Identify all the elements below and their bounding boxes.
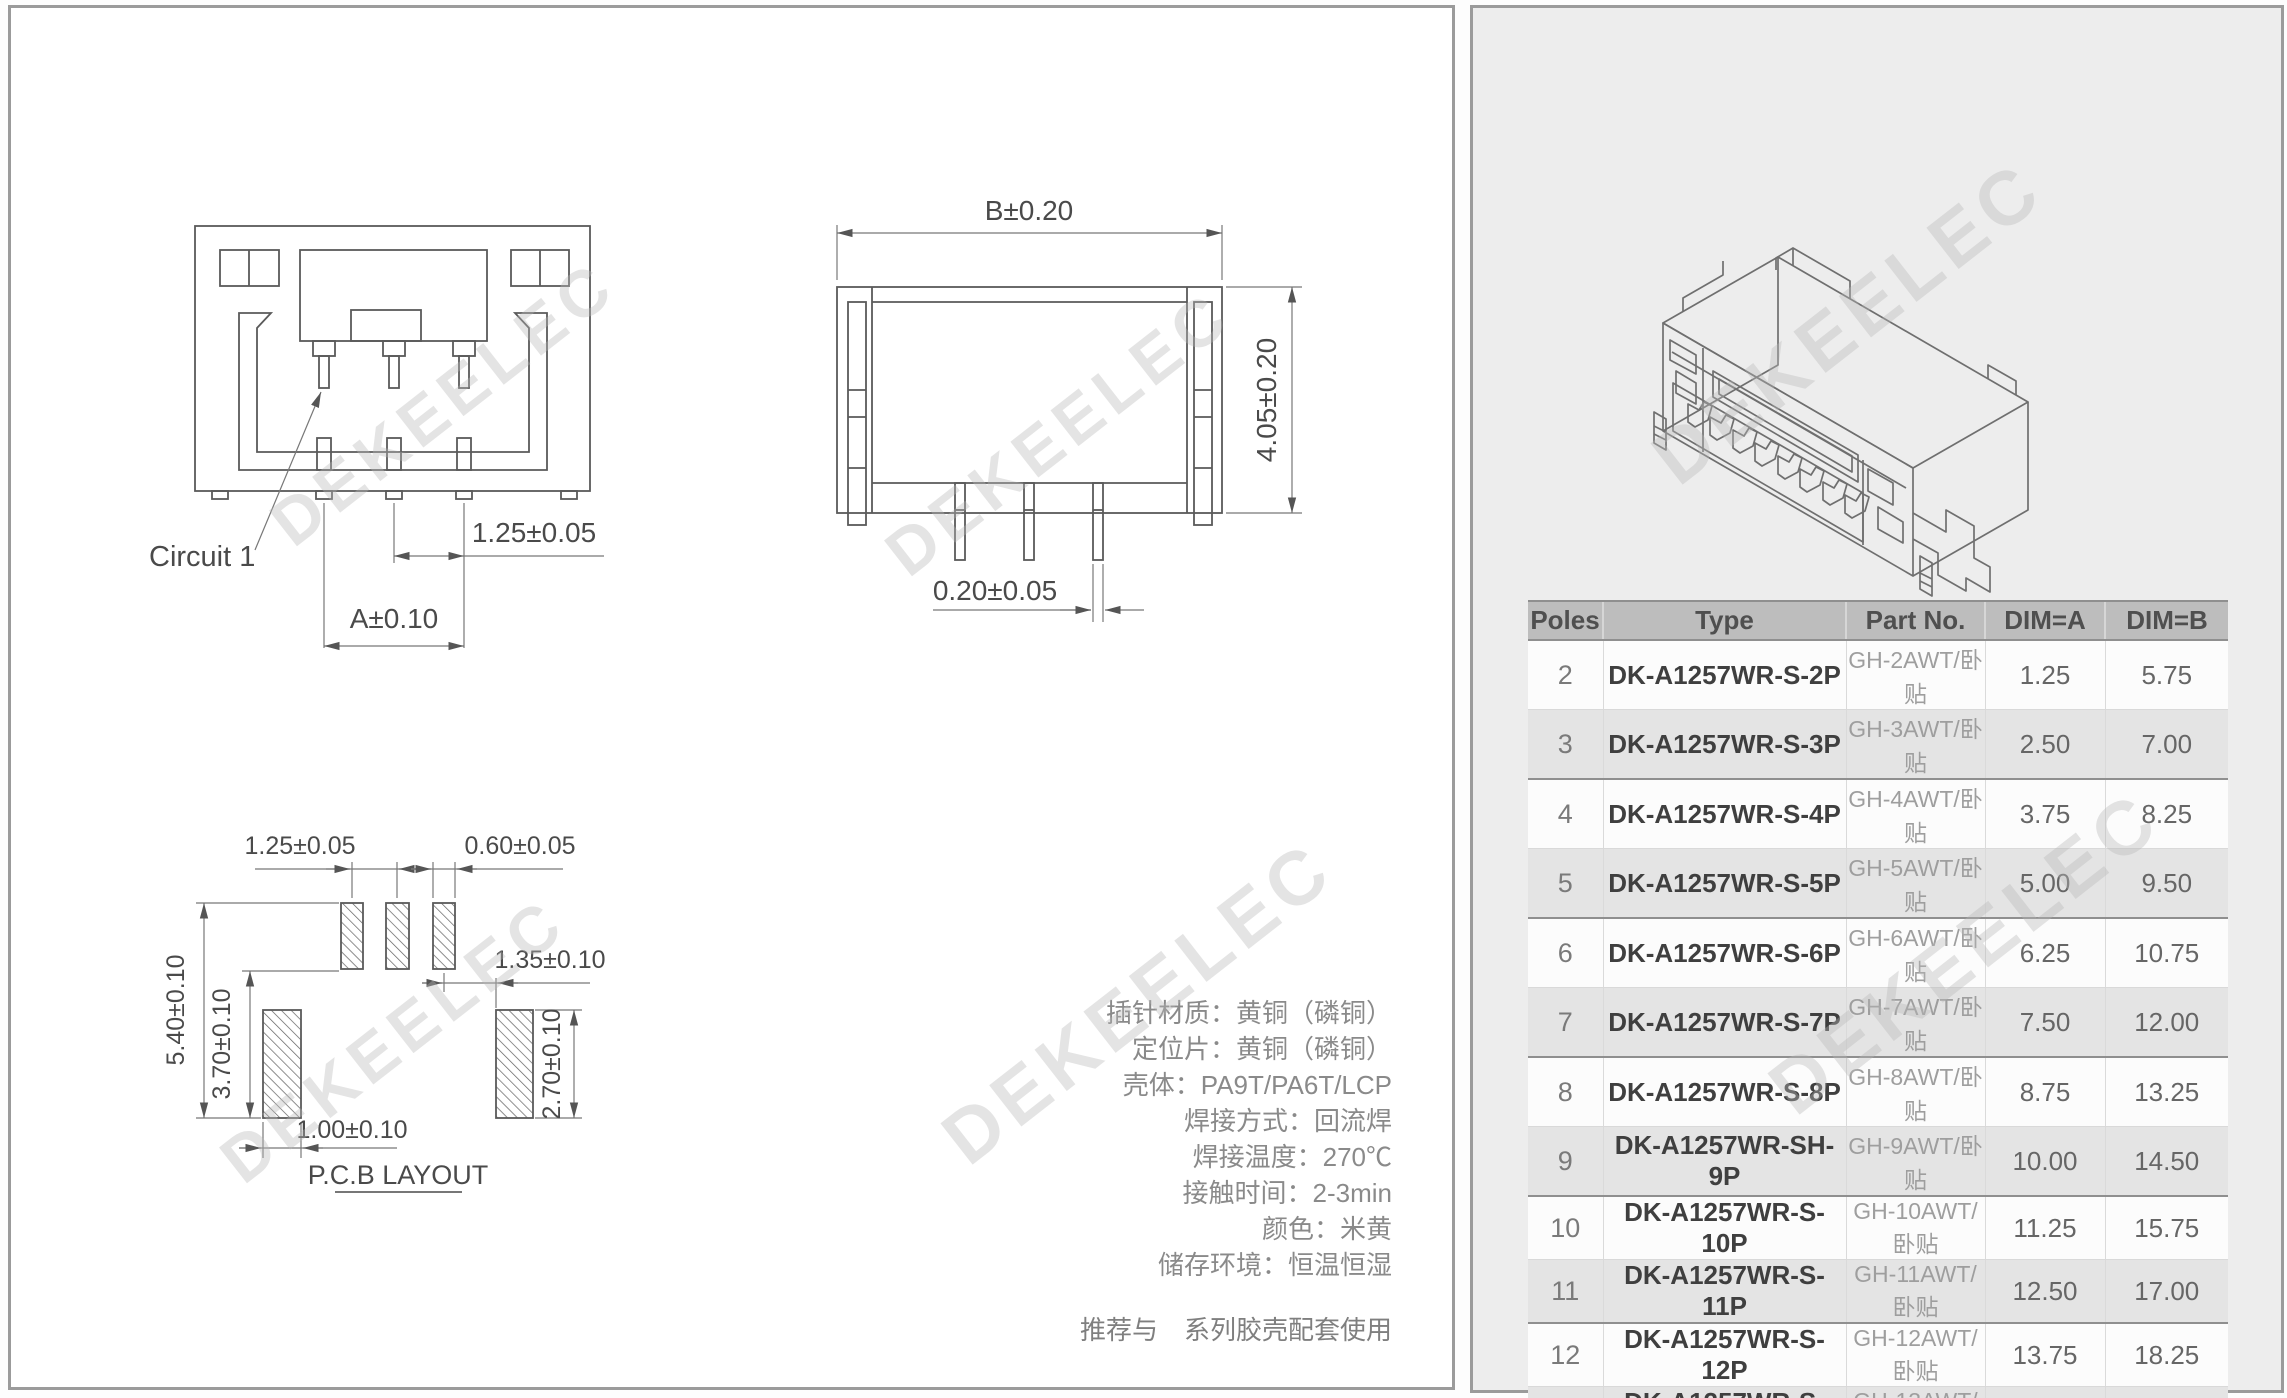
spec-line: 插针材质：黄铜（磷铜）: [1106, 995, 1392, 1031]
dim-label-gap: 1.35±0.10: [494, 946, 605, 974]
cell-part-no: GH-2AWT/卧贴: [1846, 640, 1985, 710]
cell-part-no: GH-6AWT/卧贴: [1846, 918, 1985, 988]
dim-label-left-width: 1.00±0.10: [296, 1116, 407, 1144]
cell-type: DK-A1257WR-S-6P: [1603, 918, 1846, 988]
cell-poles: 10: [1528, 1196, 1603, 1260]
cell-dim-a: 12.50: [1985, 1260, 2105, 1324]
cell-type: DK-A1257WR-S-7P: [1603, 988, 1846, 1058]
table-row: 13DK-A1257WR-S-13PGH-13AWT/卧贴15.0019.50: [1528, 1387, 2228, 1398]
part-table: PolesTypePart No.DIM=ADIM=B 2DK-A1257WR-…: [1528, 600, 2228, 1398]
pcb-layout-drawing: 1.25±0.05 0.60±0.05 1.35±0.10 5.40±0.10 …: [130, 820, 690, 1240]
cell-type: DK-A1257WR-SH-9P: [1603, 1127, 1846, 1197]
table-row: 8DK-A1257WR-S-8PGH-8AWT/卧贴8.7513.25: [1528, 1057, 2228, 1127]
spec-line: 焊接方式：回流焊: [1106, 1103, 1392, 1139]
table-row: 9DK-A1257WR-SH-9PGH-9AWT/卧贴10.0014.50: [1528, 1127, 2228, 1197]
dim-label-height: 4.05±0.20: [1251, 338, 1282, 462]
dim-label-pitch: 1.25±0.05: [472, 517, 596, 548]
cell-type: DK-A1257WR-S-10P: [1603, 1196, 1846, 1260]
cell-part-no: GH-9AWT/卧贴: [1846, 1127, 1985, 1197]
spec-line: 储存环境：恒温恒湿: [1106, 1247, 1392, 1283]
cell-dim-a: 1.25: [1985, 640, 2105, 710]
cell-poles: 6: [1528, 918, 1603, 988]
cell-part-no: GH-10AWT/卧贴: [1846, 1196, 1985, 1260]
cell-poles: 11: [1528, 1260, 1603, 1324]
cell-dim-a: 11.25: [1985, 1196, 2105, 1260]
contact-row: [1688, 402, 1869, 518]
cell-dim-b: 5.75: [2105, 640, 2228, 710]
cell-poles: 8: [1528, 1057, 1603, 1127]
cell-dim-a: 10.00: [1985, 1127, 2105, 1197]
cell-dim-a: 13.75: [1985, 1323, 2105, 1387]
cell-dim-b: 15.75: [2105, 1196, 2228, 1260]
table-row: 4DK-A1257WR-S-4PGH-4AWT/卧贴3.758.25: [1528, 779, 2228, 849]
product-panel: DEKEELEC DEKEELEC: [1470, 5, 2284, 1393]
table-row: 11DK-A1257WR-S-11PGH-11AWT/卧贴12.5017.00: [1528, 1260, 2228, 1324]
cell-part-no: GH-12AWT/卧贴: [1846, 1323, 1985, 1387]
cell-part-no: GH-11AWT/卧贴: [1846, 1260, 1985, 1324]
cell-part-no: GH-4AWT/卧贴: [1846, 779, 1985, 849]
column-header-dim-b: DIM=B: [2105, 601, 2228, 640]
dim-label-pin: 0.20±0.05: [933, 575, 1057, 606]
table-header-row: PolesTypePart No.DIM=ADIM=B: [1528, 601, 2228, 640]
cell-dim-b: 19.50: [2105, 1387, 2228, 1398]
table-row: 7DK-A1257WR-S-7PGH-7AWT/卧贴7.5012.00: [1528, 988, 2228, 1058]
table-row: 3DK-A1257WR-S-3PGH-3AWT/卧贴2.507.00: [1528, 710, 2228, 780]
cell-poles: 2: [1528, 640, 1603, 710]
cell-dim-a: 15.00: [1985, 1387, 2105, 1398]
solder-pads: [263, 903, 533, 1118]
column-header-part-no-: Part No.: [1846, 601, 1985, 640]
drawing-panel: DEKEELEC DEKEELEC DEKEELEC DEKEELEC: [8, 5, 1455, 1390]
cell-dim-b: 12.00: [2105, 988, 2228, 1058]
cell-poles: 4: [1528, 779, 1603, 849]
pin-contacts: [313, 341, 475, 388]
cell-dim-b: 14.50: [2105, 1127, 2228, 1197]
dim-label-total-height: 5.40±0.10: [162, 954, 190, 1065]
cell-type: DK-A1257WR-S-12P: [1603, 1323, 1846, 1387]
spec-line: 颜色：米黄: [1106, 1211, 1392, 1247]
table-row: 5DK-A1257WR-S-5PGH-5AWT/卧贴5.009.50: [1528, 849, 2228, 919]
pcb-layout-title: P.C.B LAYOUT: [308, 1160, 489, 1190]
table-row: 10DK-A1257WR-S-10PGH-10AWT/卧贴11.2515.75: [1528, 1196, 2228, 1260]
dim-label-inner-height: 3.70±0.10: [208, 988, 236, 1099]
spec-line: 焊接温度：270℃: [1106, 1139, 1392, 1175]
cell-poles: 9: [1528, 1127, 1603, 1197]
dim-label-pad-width: 0.60±0.05: [464, 832, 575, 860]
cell-poles: 7: [1528, 988, 1603, 1058]
cell-dim-b: 8.25: [2105, 779, 2228, 849]
cell-type: DK-A1257WR-S-3P: [1603, 710, 1846, 780]
cell-dim-b: 13.25: [2105, 1057, 2228, 1127]
cell-dim-b: 7.00: [2105, 710, 2228, 780]
spec-line: 定位片：黄铜（磷铜）: [1106, 1031, 1392, 1067]
cell-part-no: GH-7AWT/卧贴: [1846, 988, 1985, 1058]
dim-label-a: A±0.10: [350, 603, 439, 634]
cell-part-no: GH-3AWT/卧贴: [1846, 710, 1985, 780]
cell-part-no: GH-8AWT/卧贴: [1846, 1057, 1985, 1127]
cell-poles: 13: [1528, 1387, 1603, 1398]
column-header-type: Type: [1603, 601, 1846, 640]
datasheet-canvas: DEKEELEC DEKEELEC DEKEELEC DEKEELEC: [0, 0, 2287, 1398]
circuit1-label: Circuit 1: [149, 541, 255, 573]
cell-type: DK-A1257WR-S-8P: [1603, 1057, 1846, 1127]
cell-poles: 12: [1528, 1323, 1603, 1387]
cell-dim-a: 2.50: [1985, 710, 2105, 780]
cell-dim-b: 17.00: [2105, 1260, 2228, 1324]
cell-dim-b: 10.75: [2105, 918, 2228, 988]
connector-3d-drawing: [1588, 128, 2158, 608]
cell-part-no: GH-5AWT/卧贴: [1846, 849, 1985, 919]
dim-label-b: B±0.20: [985, 195, 1074, 226]
cell-type: DK-A1257WR-S-4P: [1603, 779, 1846, 849]
cell-poles: 3: [1528, 710, 1603, 780]
cell-type: DK-A1257WR-S-2P: [1603, 640, 1846, 710]
side-view-drawing: B±0.20 4.05±0.20 0.20±0.05: [810, 180, 1340, 630]
cell-dim-a: 8.75: [1985, 1057, 2105, 1127]
table-row: 12DK-A1257WR-S-12PGH-12AWT/卧贴13.7518.25: [1528, 1323, 2228, 1387]
column-header-dim-a: DIM=A: [1985, 601, 2105, 640]
spec-line: 壳体：PA9T/PA6T/LCP: [1106, 1067, 1392, 1103]
cell-dim-a: 5.00: [1985, 849, 2105, 919]
cell-dim-a: 7.50: [1985, 988, 2105, 1058]
table-row: 2DK-A1257WR-S-2PGH-2AWT/卧贴1.255.75: [1528, 640, 2228, 710]
cell-dim-b: 9.50: [2105, 849, 2228, 919]
dim-label-pcb-pitch: 1.25±0.05: [244, 832, 355, 860]
part-table-container: PolesTypePart No.DIM=ADIM=B 2DK-A1257WR-…: [1528, 600, 2228, 1398]
cell-poles: 5: [1528, 849, 1603, 919]
dim-label-right-height: 2.70±0.10: [538, 1008, 566, 1119]
column-header-poles: Poles: [1528, 601, 1603, 640]
cell-part-no: GH-13AWT/卧贴: [1846, 1387, 1985, 1398]
material-specs: 插针材质：黄铜（磷铜）定位片：黄铜（磷铜）壳体：PA9T/PA6T/LCP焊接方…: [1106, 995, 1392, 1283]
table-row: 6DK-A1257WR-S-6PGH-6AWT/卧贴6.2510.75: [1528, 918, 2228, 988]
cell-type: DK-A1257WR-S-13P: [1603, 1387, 1846, 1398]
spec-line: 接触时间：2-3min: [1106, 1175, 1392, 1211]
cell-dim-b: 18.25: [2105, 1323, 2228, 1387]
cell-dim-a: 3.75: [1985, 779, 2105, 849]
front-view-drawing: 1.25±0.05 A±0.10 Circuit 1: [127, 178, 707, 658]
cell-type: DK-A1257WR-S-5P: [1603, 849, 1846, 919]
cell-type: DK-A1257WR-S-11P: [1603, 1260, 1846, 1324]
cell-dim-a: 6.25: [1985, 918, 2105, 988]
recommendation-note: 推荐与 系列胶壳配套使用: [1080, 1310, 1392, 1347]
